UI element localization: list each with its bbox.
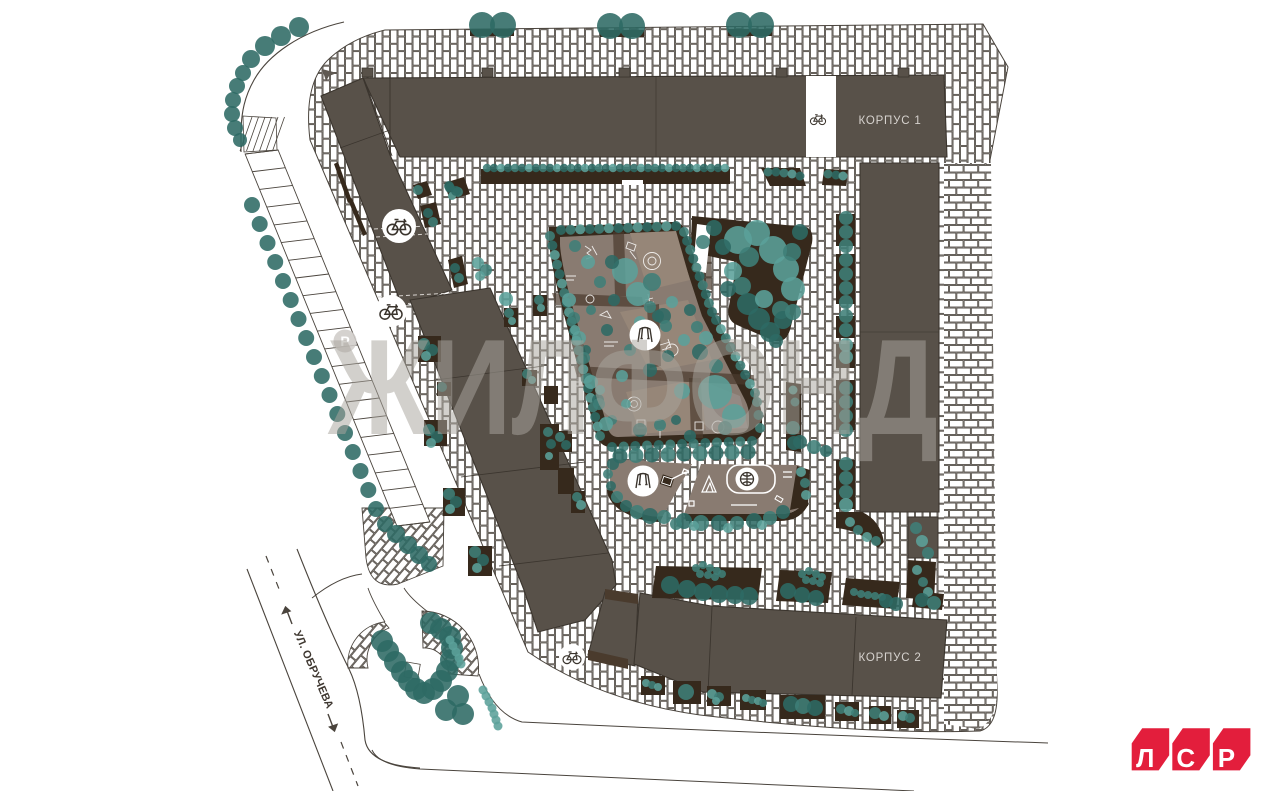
svg-text:КОРПУС 2: КОРПУС 2 bbox=[858, 652, 921, 664]
svg-text:ЖИЛФОНД: ЖИЛФОНД bbox=[327, 311, 938, 463]
svg-text:С: С bbox=[1176, 743, 1195, 773]
svg-text:Л: Л bbox=[1136, 743, 1154, 773]
svg-text:КОРПУС 1: КОРПУС 1 bbox=[858, 115, 921, 127]
svg-text:Р: Р bbox=[1218, 743, 1235, 773]
